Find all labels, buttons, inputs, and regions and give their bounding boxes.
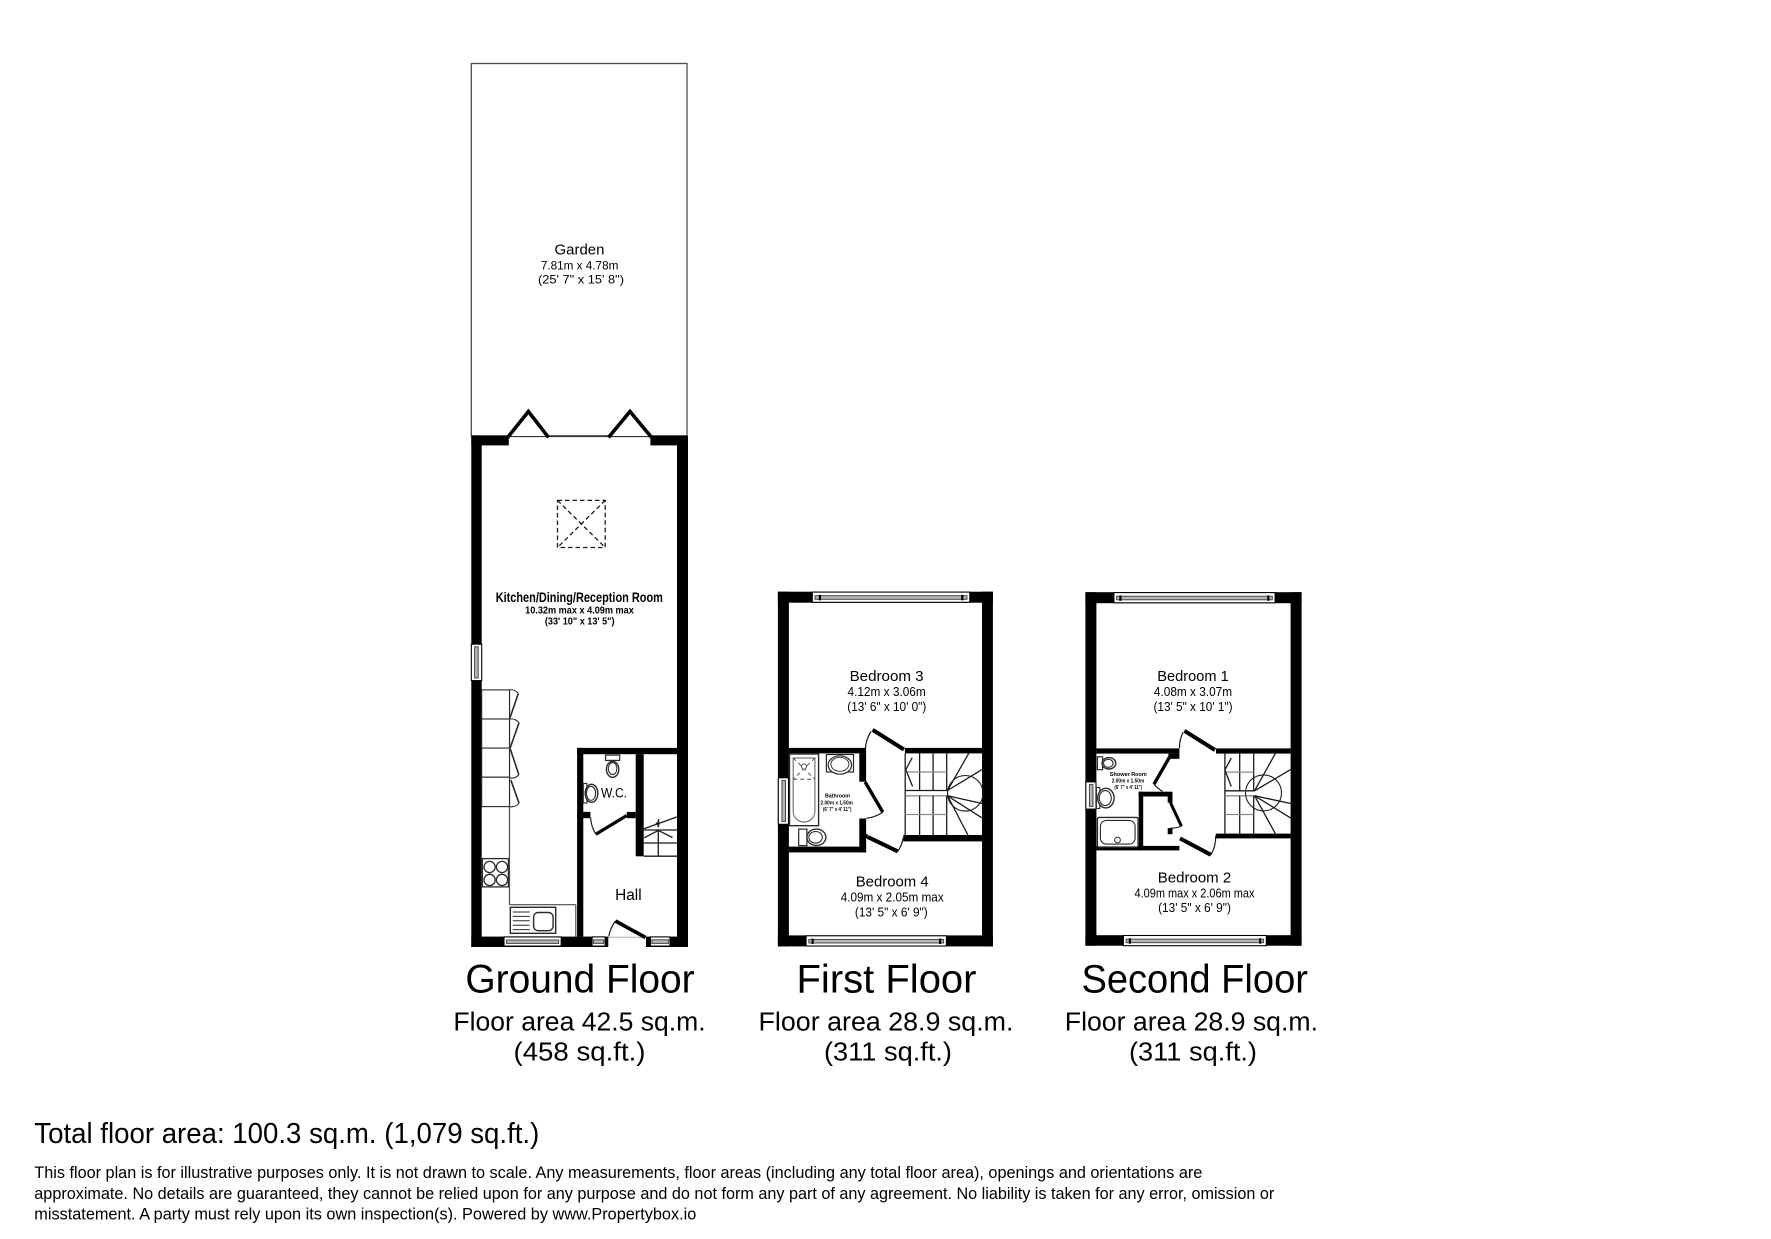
svg-text:Bathroom: Bathroom: [825, 794, 850, 800]
svg-text:(13' 6" x 10' 0"): (13' 6" x 10' 0"): [847, 699, 926, 714]
svg-text:Bedroom 3: Bedroom 3: [850, 668, 924, 685]
svg-text:Total floor area: 100.3 sq.m.: Total floor area: 100.3 sq.m. (1,079 sq.…: [34, 1118, 539, 1150]
svg-text:(311 sq.ft.): (311 sq.ft.): [1129, 1038, 1257, 1066]
svg-text:Kitchen/Dining/Reception Room: Kitchen/Dining/Reception Room: [496, 590, 663, 605]
svg-text:(33' 10" x 13' 5"): (33' 10" x 13' 5"): [545, 617, 615, 628]
svg-text:4.08m x 3.07m: 4.08m x 3.07m: [1154, 684, 1232, 699]
svg-text:(6' 7" x 4' 11"): (6' 7" x 4' 11"): [823, 807, 852, 813]
svg-text:10.32m max x 4.09m max: 10.32m max x 4.09m max: [525, 605, 634, 616]
svg-text:Hall: Hall: [615, 887, 642, 904]
svg-text:(6' 7" x 4' 11"): (6' 7" x 4' 11"): [1114, 785, 1142, 791]
svg-text:Floor area 42.5 sq.m.: Floor area 42.5 sq.m.: [453, 1008, 705, 1036]
svg-text:Bedroom 1: Bedroom 1: [1157, 668, 1228, 685]
svg-text:Floor area 28.9 sq.m.: Floor area 28.9 sq.m.: [1065, 1008, 1318, 1036]
svg-text:(311 sq.ft.): (311 sq.ft.): [824, 1038, 952, 1066]
svg-text:4.12m x 3.06m: 4.12m x 3.06m: [848, 684, 926, 699]
svg-text:Garden: Garden: [555, 242, 605, 259]
svg-text:W.C.: W.C.: [601, 786, 627, 802]
svg-text:Bedroom 2: Bedroom 2: [1158, 869, 1231, 886]
svg-text:(13' 5" x 6' 9"): (13' 5" x 6' 9"): [1158, 900, 1231, 915]
svg-text:Ground Floor: Ground Floor: [465, 957, 694, 1001]
svg-text:First Floor: First Floor: [797, 957, 977, 1001]
svg-text:2.00m x 1.50m: 2.00m x 1.50m: [1112, 779, 1144, 785]
svg-text:7.81m x 4.78m: 7.81m x 4.78m: [541, 259, 619, 273]
svg-text:4.09m max x 2.06m max: 4.09m max x 2.06m max: [1135, 885, 1255, 900]
svg-text:(25' 7" x 15' 8"): (25' 7" x 15' 8"): [538, 273, 624, 287]
svg-text:Second Floor: Second Floor: [1081, 957, 1308, 1001]
svg-text:Floor area 28.9 sq.m.: Floor area 28.9 sq.m.: [759, 1008, 1014, 1036]
svg-text:approximate. No details are gu: approximate. No details are guaranteed, …: [34, 1185, 1275, 1203]
svg-text:2.00m x 1.50m: 2.00m x 1.50m: [821, 800, 853, 806]
svg-text:(13' 5" x 6' 9"): (13' 5" x 6' 9"): [855, 904, 928, 919]
svg-text:Bedroom 4: Bedroom 4: [856, 874, 929, 891]
svg-text:(458 sq.ft.): (458 sq.ft.): [514, 1038, 646, 1066]
svg-text:4.09m x 2.05m max: 4.09m x 2.05m max: [841, 890, 944, 905]
svg-text:Shower Room: Shower Room: [1110, 772, 1147, 778]
svg-text:(13' 5" x 10' 1"): (13' 5" x 10' 1"): [1154, 699, 1233, 714]
svg-text:misstatement. A party must rel: misstatement. A party must rely upon its…: [34, 1206, 696, 1224]
svg-text:This floor plan is for illustr: This floor plan is for illustrative purp…: [34, 1164, 1202, 1182]
